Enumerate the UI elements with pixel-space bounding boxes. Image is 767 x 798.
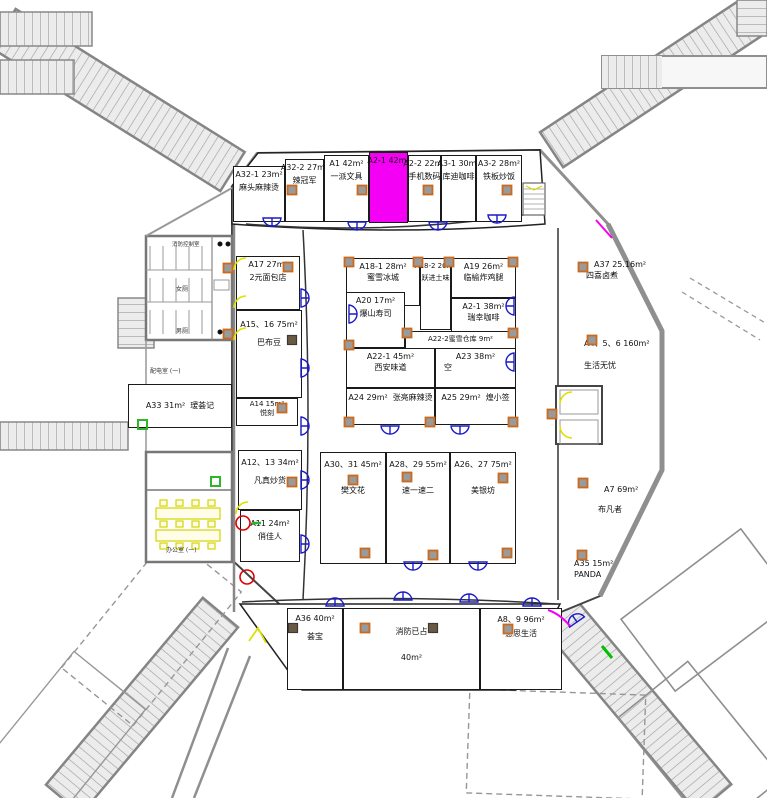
shop-unit-a15-16: A15、16 75m² 巴布豆 <box>236 310 302 398</box>
shop-unit-a22-1: A22-1 45m² 西安味道 <box>346 348 435 388</box>
shop-unit-a1: A1 42m² 一派文具 <box>324 155 369 222</box>
shop-unit-a8-9: A8、9 96m² 意思生活 <box>480 608 562 690</box>
building-outline-right <box>621 529 767 691</box>
shop-unit-a23: A23 38m² 空 <box>435 348 516 388</box>
office-block <box>146 452 232 562</box>
fire-control-room-label: 消防控制室 <box>172 240 200 248</box>
stairs-top-right <box>602 56 662 88</box>
shop-unit-a12-13: A12、13 34m² 凡真炒货 <box>238 450 302 510</box>
shop-unit-a32-2: A32-2 27m² 辣冠军 <box>285 159 324 222</box>
room-fire-occupied: 消防已占 40m² <box>343 608 480 690</box>
shop-unit-a14: A14 15m² 悦刻 <box>236 398 298 426</box>
shop-unit-a4-5-6: A4、5、6 160m² 生活无忧 <box>580 336 690 388</box>
shop-unit-a3-2: A3-2 28m² 铁板炒饭 <box>476 155 522 222</box>
shop-unit-a18-2: A18-2 20m² 跃进土味 <box>420 258 451 330</box>
office-label: 办公室 (一) <box>166 546 197 554</box>
corridor-top-left-stub <box>0 12 92 46</box>
shop-unit-a3-1: A3-1 30m² 库迪咖啡 <box>441 155 476 222</box>
corridor-top-left-stub2 <box>0 60 74 94</box>
shop-unit-a35: A35 15m² PANDA <box>570 556 634 590</box>
shop-unit-a28-29: A28、29 55m² 速一速二 <box>386 452 450 564</box>
shop-unit-a7: A7 69m² 布凡者 <box>592 482 668 532</box>
shop-unit-a30-31: A30、31 45m² 樊文花 <box>320 452 386 564</box>
shop-unit-a25: A25 29m² 煌小签 <box>435 388 516 425</box>
escalator <box>523 183 545 215</box>
shop-unit-a26-27: A26、27 75m² 美银坊 <box>450 452 516 564</box>
dashed-walkway-right <box>682 278 767 340</box>
mall-floor-plan: 消防控制室 女厕 男厕 配电室 (一) 办公室 (一) <box>0 0 767 798</box>
shop-unit-a11: A11 24m² 俏佳人 <box>240 510 300 562</box>
toilet-female-label: 女厕 <box>176 285 188 293</box>
shop-unit-a22-2: A22-2蜜雪仓库 9m² <box>405 331 516 349</box>
shop-unit-a24: A24 29m² 张亮麻辣烫 <box>346 388 435 425</box>
shop-unit-a19: A19 26m² 临榆炸鸡腿 <box>451 258 516 298</box>
toilet-male-label: 男厕 <box>176 328 188 335</box>
shop-unit-a2-2: A2-2 22m² 手机数码 <box>408 155 441 222</box>
shop-unit-a21: A2-1 38m² 瑞幸咖啡 <box>451 298 516 334</box>
shop-unit-a2-1-highlighted: A2-1 42m² <box>369 152 408 223</box>
shop-unit-a17: A17 27m² 2元面包店 <box>236 256 300 310</box>
power-room-label: 配电室 (一) <box>150 367 181 375</box>
corridor-top-right-corner <box>737 0 767 36</box>
shop-unit-a33: A33 31m² 瑷荟记 <box>128 384 232 428</box>
shop-unit-a36: A36 40m² 荟宝 <box>287 608 343 690</box>
bridge-bottom-right <box>541 597 732 798</box>
shop-unit-a20: A20 17m² 爆山寿司 <box>346 292 405 348</box>
elevator <box>556 386 602 444</box>
bridge-left <box>0 422 128 450</box>
shop-unit-a37: A37 25.16m² 四喜卤煮 <box>590 257 670 289</box>
shop-unit-a32-1: A32-1 23m² 麻头麻辣烫 <box>233 166 285 222</box>
